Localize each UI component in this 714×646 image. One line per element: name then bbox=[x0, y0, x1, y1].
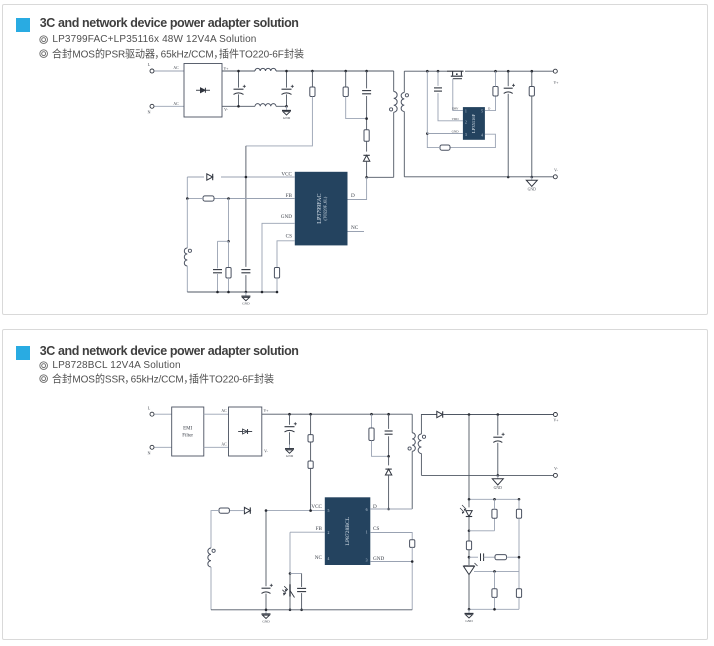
svg-text:GND: GND bbox=[465, 619, 473, 623]
svg-text:V+: V+ bbox=[224, 67, 229, 71]
svg-text:EMI: EMI bbox=[183, 427, 193, 432]
svg-text:V+: V+ bbox=[264, 409, 269, 413]
svg-text:GND: GND bbox=[283, 116, 291, 120]
svg-text:GND: GND bbox=[528, 188, 536, 192]
svg-text:N: N bbox=[147, 110, 150, 115]
svg-text:V-: V- bbox=[264, 450, 268, 454]
svg-text:5: 5 bbox=[481, 110, 483, 114]
svg-text:AC: AC bbox=[173, 66, 179, 70]
svg-text:NC: NC bbox=[351, 225, 359, 231]
svg-text:D: D bbox=[488, 106, 491, 110]
svg-text:GND: GND bbox=[242, 302, 250, 306]
svg-text:GND: GND bbox=[452, 129, 460, 133]
svg-text:4: 4 bbox=[328, 557, 330, 561]
svg-text:LP8728BCL: LP8728BCL bbox=[345, 516, 351, 545]
svg-text:LP35116F: LP35116F bbox=[471, 113, 476, 133]
svg-text:GND: GND bbox=[262, 619, 270, 623]
svg-text:V+: V+ bbox=[554, 81, 559, 85]
svg-text:Filter: Filter bbox=[182, 434, 193, 439]
svg-text:CS: CS bbox=[286, 234, 292, 240]
svg-text:V+: V+ bbox=[554, 419, 559, 423]
svg-text:V-: V- bbox=[224, 108, 228, 112]
svg-text:3: 3 bbox=[465, 133, 467, 137]
svg-text:2: 2 bbox=[328, 531, 330, 535]
svg-text:GND: GND bbox=[281, 214, 292, 220]
svg-text:L: L bbox=[148, 62, 151, 67]
svg-text:V-: V- bbox=[554, 467, 558, 471]
svg-text:DRV: DRV bbox=[452, 107, 459, 111]
svg-text:AC: AC bbox=[173, 102, 179, 106]
svg-text:3: 3 bbox=[366, 559, 368, 563]
svg-text:(TO220F_6L): (TO220F_6L) bbox=[323, 196, 328, 220]
svg-text:1: 1 bbox=[465, 110, 467, 114]
svg-text:5: 5 bbox=[328, 509, 330, 513]
svg-text:AC: AC bbox=[221, 409, 227, 413]
svg-text:D: D bbox=[351, 193, 355, 199]
svg-text:GND: GND bbox=[494, 486, 502, 490]
svg-text:V-: V- bbox=[554, 169, 558, 173]
svg-text:VCC: VCC bbox=[311, 504, 322, 510]
svg-text:1: 1 bbox=[366, 531, 368, 535]
svg-text:FB: FB bbox=[316, 526, 323, 532]
svg-text:CS: CS bbox=[373, 526, 379, 532]
svg-text:L: L bbox=[148, 406, 151, 411]
svg-text:GND: GND bbox=[286, 454, 294, 458]
svg-text:N: N bbox=[147, 451, 150, 456]
svg-text:6: 6 bbox=[366, 508, 368, 512]
svg-text:2: 2 bbox=[465, 120, 467, 124]
svg-text:VDD: VDD bbox=[452, 117, 460, 121]
svg-text:AC: AC bbox=[221, 442, 227, 446]
svg-text:4: 4 bbox=[481, 134, 483, 138]
svg-text:NC: NC bbox=[315, 555, 323, 561]
